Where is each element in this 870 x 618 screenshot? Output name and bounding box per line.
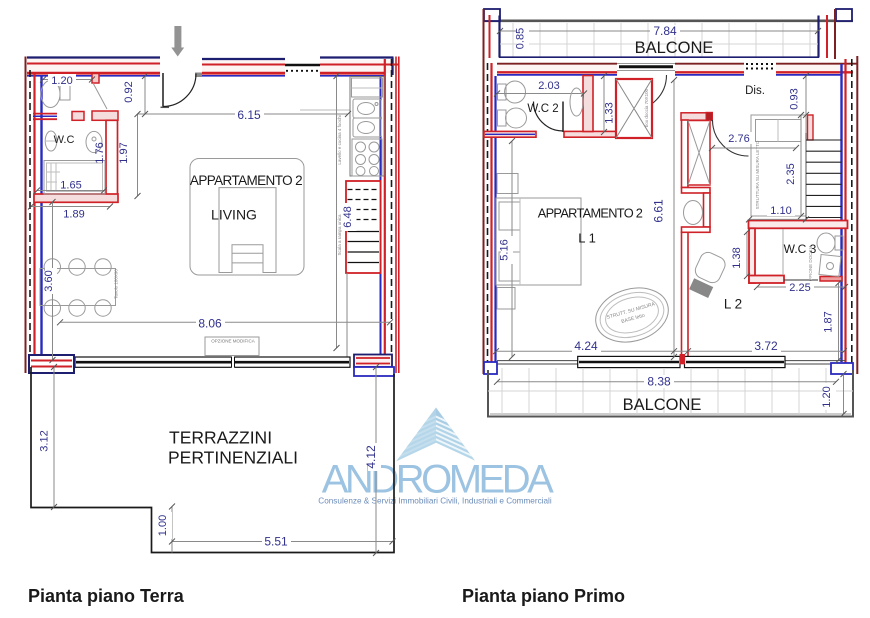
svg-text:1.89: 1.89	[63, 209, 84, 221]
svg-text:1.00: 1.00	[157, 515, 169, 536]
svg-text:Consulenze & Servizi Immobilia: Consulenze & Servizi Immobiliari Civili,…	[318, 497, 552, 506]
svg-text:0.85: 0.85	[515, 28, 527, 49]
svg-text:1.38: 1.38	[731, 247, 743, 268]
svg-text:TERRAZZINI: TERRAZZINI	[169, 428, 272, 448]
svg-text:OPZIONE MODIFICA: OPZIONE MODIFICA	[211, 339, 255, 344]
svg-text:1.87: 1.87	[823, 311, 835, 332]
svg-text:W.C: W.C	[54, 134, 75, 146]
svg-text:3.72: 3.72	[754, 339, 778, 353]
svg-text:PERTINENZIALI: PERTINENZIALI	[168, 448, 298, 468]
svg-text:6.15: 6.15	[237, 108, 261, 122]
svg-text:5.16: 5.16	[499, 239, 511, 260]
svg-text:1.33: 1.33	[604, 102, 616, 123]
svg-text:Tavolo 180X90: Tavolo 180X90	[114, 269, 119, 299]
svg-text:6.48: 6.48	[342, 206, 354, 227]
svg-text:ANDROMEDA: ANDROMEDA	[322, 458, 554, 502]
svg-text:box doccia 70X100: box doccia 70X100	[644, 88, 649, 127]
svg-text:1.65: 1.65	[60, 180, 81, 192]
svg-text:L 1: L 1	[578, 231, 596, 246]
svg-text:1.76: 1.76	[94, 142, 106, 163]
svg-text:W.C 3: W.C 3	[784, 242, 817, 256]
svg-text:7.84: 7.84	[653, 24, 677, 38]
svg-text:2.76: 2.76	[728, 133, 749, 145]
svg-text:Dis.: Dis.	[745, 85, 765, 97]
svg-text:6.61: 6.61	[652, 199, 666, 223]
svg-text:STRUTTURA SU MISURA LETTO: STRUTTURA SU MISURA LETTO	[755, 140, 760, 209]
svg-text:4.12: 4.12	[364, 445, 378, 469]
svg-text:3.12: 3.12	[39, 430, 51, 451]
svg-text:3.60: 3.60	[43, 270, 55, 291]
svg-text:L 2: L 2	[724, 297, 742, 312]
svg-text:2.03: 2.03	[538, 80, 559, 92]
svg-text:BALCONE: BALCONE	[623, 396, 702, 414]
svg-text:2.35: 2.35	[785, 163, 797, 184]
svg-text:Scala a rampa unica: Scala a rampa unica	[337, 214, 342, 256]
svg-text:8.06: 8.06	[198, 317, 222, 331]
svg-text:BALCONE: BALCONE	[635, 39, 714, 57]
svg-text:5.51: 5.51	[264, 535, 288, 549]
svg-text:APPARTAMENTO 2: APPARTAMENTO 2	[538, 206, 643, 221]
svg-text:Pianta piano Primo: Pianta piano Primo	[462, 586, 625, 606]
svg-text:1.20: 1.20	[821, 386, 833, 407]
svg-text:1.20: 1.20	[51, 75, 72, 87]
svg-text:APPARTAMENTO 2: APPARTAMENTO 2	[190, 173, 302, 188]
svg-text:Pianta piano Terra: Pianta piano Terra	[28, 586, 185, 606]
svg-text:0.92: 0.92	[123, 81, 135, 102]
svg-text:Lavello e cucina 4 fuochi: Lavello e cucina 4 fuochi	[337, 115, 342, 164]
svg-text:4.24: 4.24	[574, 339, 598, 353]
svg-text:1.10: 1.10	[770, 205, 791, 217]
svg-text:8.38: 8.38	[647, 375, 671, 389]
svg-text:LIVING: LIVING	[211, 207, 257, 223]
svg-text:1.97: 1.97	[118, 142, 130, 163]
svg-text:0.93: 0.93	[789, 88, 801, 109]
svg-text:W.C 2: W.C 2	[527, 103, 558, 115]
svg-text:2.25: 2.25	[789, 282, 810, 294]
